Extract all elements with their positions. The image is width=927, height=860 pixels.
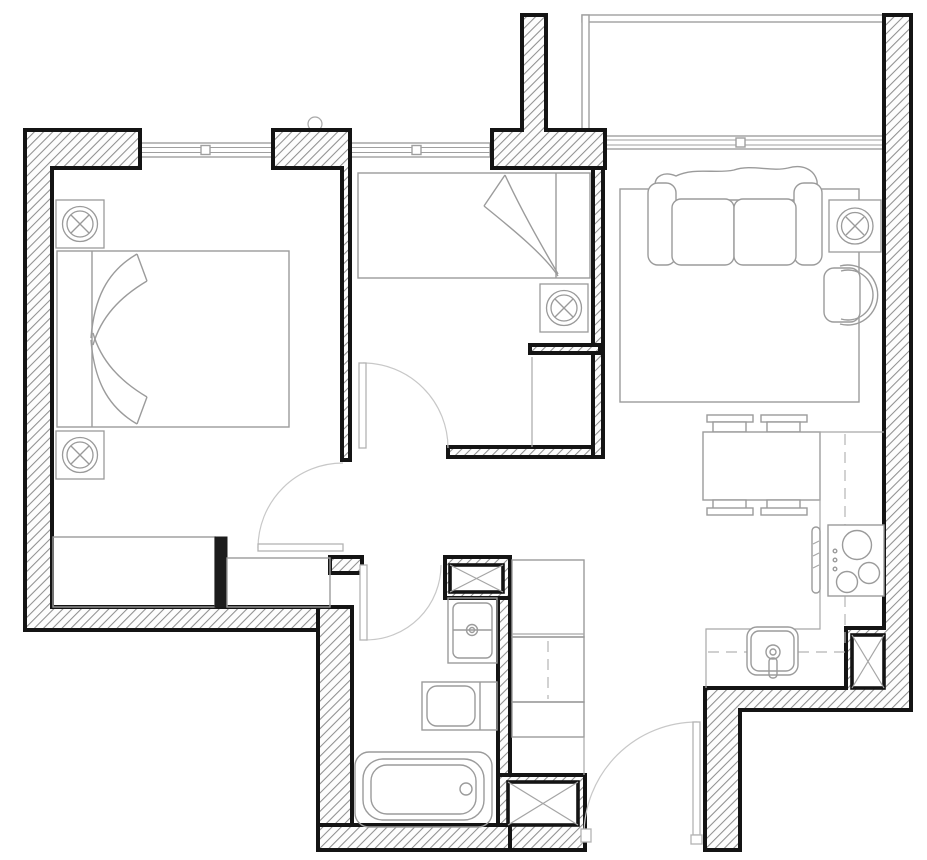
bed-double-blanket-fold [137, 254, 147, 281]
wall-hall-bath-north [330, 557, 362, 573]
door-swing-kidsroom [363, 363, 448, 448]
bed-double-blanket-fold [91, 254, 137, 338]
dining-chair-back [761, 508, 807, 515]
bed-double-blanket-fold [91, 340, 137, 424]
oven-strip-tick [813, 541, 819, 544]
bed-single-blanket-fold [505, 175, 558, 274]
wall-bedrooms-divider [273, 130, 350, 460]
bathtub-inner [363, 759, 484, 820]
closet-bedroom-low [227, 558, 330, 607]
dining-chair-back [707, 415, 753, 422]
door-leaf-kidsroom [359, 363, 366, 448]
bed-double-blanket-fold [93, 281, 147, 345]
wall-kidsroom-niche-stub [530, 345, 600, 353]
bed-single-blanket-fold [484, 206, 558, 276]
oven-front-strip [812, 527, 820, 593]
washing-machine [427, 686, 475, 726]
wall-kidsroom-east [593, 168, 603, 457]
door-swing-bedroom [258, 463, 343, 548]
bed-single-blanket-fold [484, 175, 505, 206]
bed-double-blanket-fold [93, 333, 147, 397]
balcony-parapet-left [582, 15, 589, 136]
hall-closet-cabinet [512, 560, 584, 637]
balcony-parapet-top [582, 15, 884, 22]
dining-chair-seat [713, 422, 746, 432]
door-leaf-bedroom [258, 544, 343, 551]
hall-closet-cabinet [512, 702, 584, 737]
armchair-seat [824, 268, 860, 322]
floorplan-page [0, 0, 927, 860]
kitchen-sink [747, 627, 798, 675]
washer-counter [422, 682, 497, 730]
door-swing-bathroom [366, 565, 441, 640]
door-swing-entry [584, 722, 697, 835]
sofa-seat-cushion [672, 199, 734, 265]
wall-kidsroom-south [448, 447, 603, 457]
door-jamb-entry [691, 835, 702, 844]
floorplan [0, 0, 927, 860]
dining-chair-back [707, 508, 753, 515]
dining-chair-back [761, 415, 807, 422]
oven-strip-tick [813, 553, 819, 556]
window-kidsroom-mullion [412, 146, 421, 155]
wardrobe-bedroom [53, 537, 215, 607]
wall-bath-south [318, 825, 510, 850]
wardrobe-partition [215, 537, 227, 607]
door-leaf-bathroom [360, 565, 367, 640]
bed-single [358, 173, 590, 278]
dining-chair-seat [767, 422, 800, 432]
window-bedroom-mullion [201, 146, 210, 155]
wall-bath-west [318, 607, 352, 850]
window-livingroom-mullion [736, 138, 745, 147]
bathtub-drain [460, 783, 472, 795]
floorplan-content [25, 15, 911, 850]
door-leaf-entry [693, 722, 700, 835]
bed-double-blanket-fold [137, 397, 147, 424]
oven-strip-tick [813, 565, 819, 568]
sofa-armrest-right [794, 183, 822, 265]
door-jamb-entry [581, 829, 591, 842]
dining-table [703, 432, 820, 500]
sofa-seat-cushion [734, 199, 796, 265]
wall-bath-east [498, 598, 510, 775]
